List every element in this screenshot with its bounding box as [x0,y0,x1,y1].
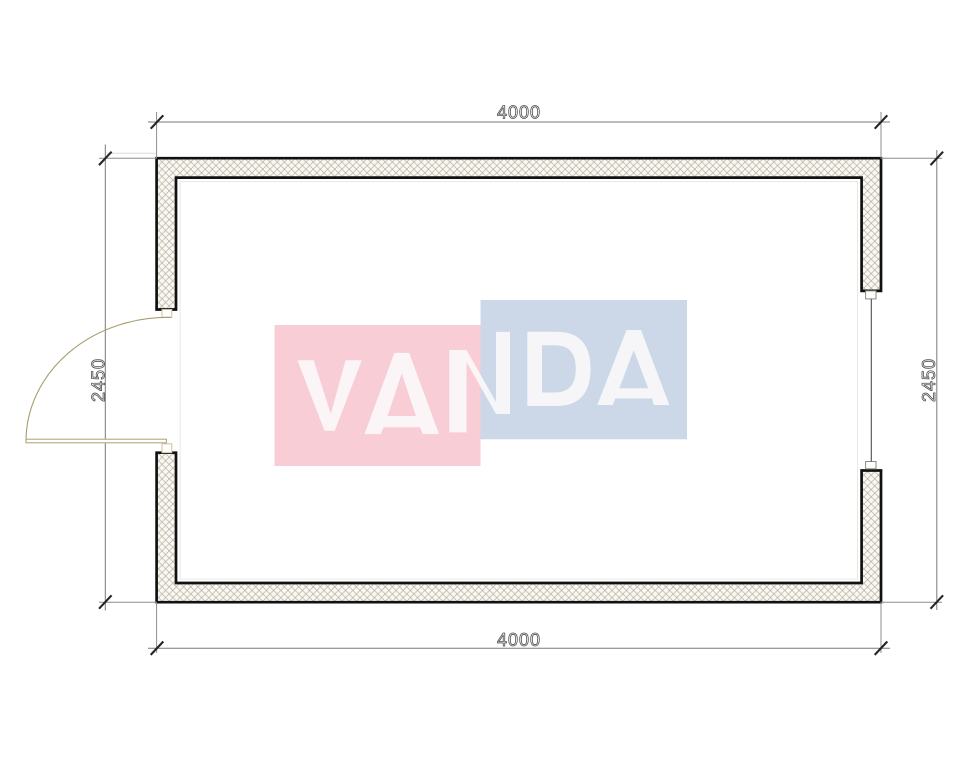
svg-text:4000: 4000 [497,103,541,123]
svg-text:4000: 4000 [497,630,541,650]
svg-text:2450: 2450 [919,358,939,402]
svg-text:2450: 2450 [89,358,109,402]
